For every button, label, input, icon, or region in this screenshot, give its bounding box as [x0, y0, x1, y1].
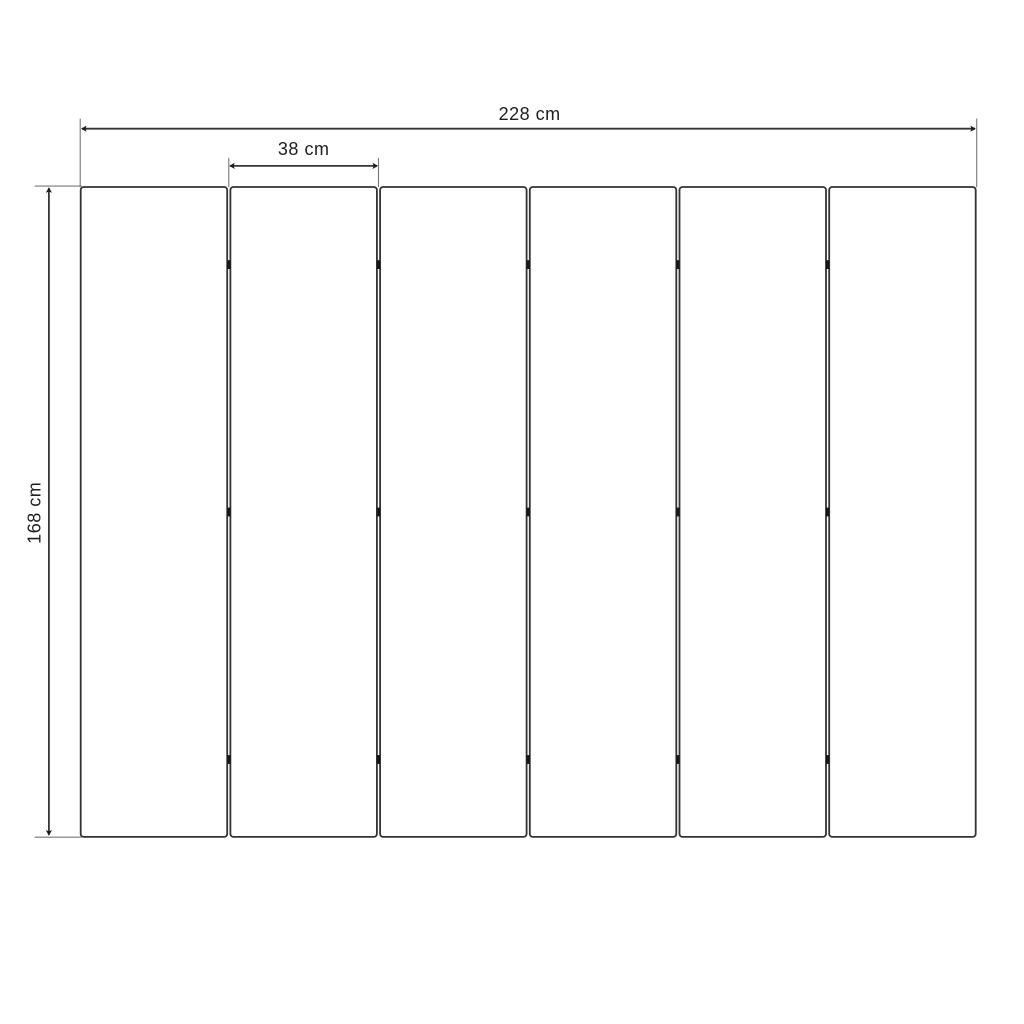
svg-text:38 cm: 38 cm — [278, 139, 330, 159]
svg-text:228 cm: 228 cm — [499, 104, 561, 124]
svg-text:168 cm: 168 cm — [25, 482, 45, 544]
